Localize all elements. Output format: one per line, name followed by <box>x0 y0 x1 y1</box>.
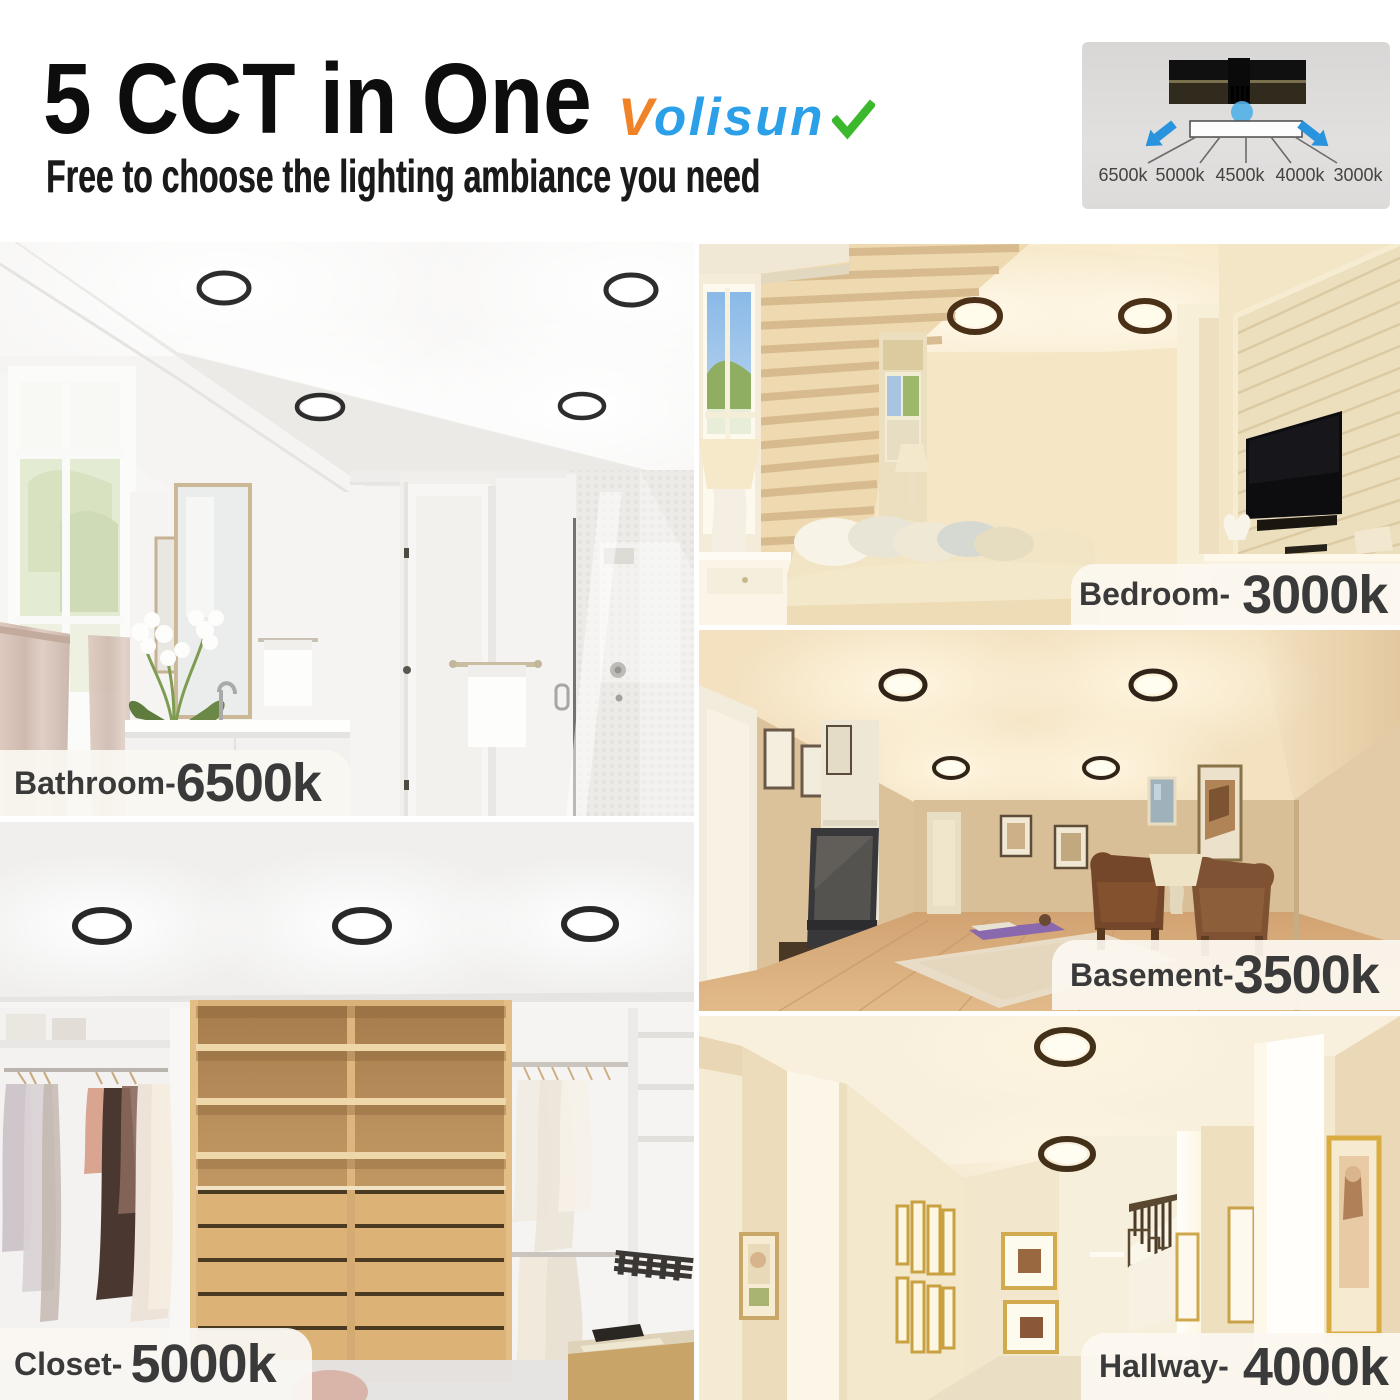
svg-text:4500k: 4500k <box>1215 165 1265 185</box>
svg-text:3000k: 3000k <box>1333 165 1383 185</box>
svg-text:6500k: 6500k <box>1098 165 1148 185</box>
svg-text:5000k: 5000k <box>1155 165 1205 185</box>
svg-text:4000k: 4000k <box>1275 165 1325 185</box>
